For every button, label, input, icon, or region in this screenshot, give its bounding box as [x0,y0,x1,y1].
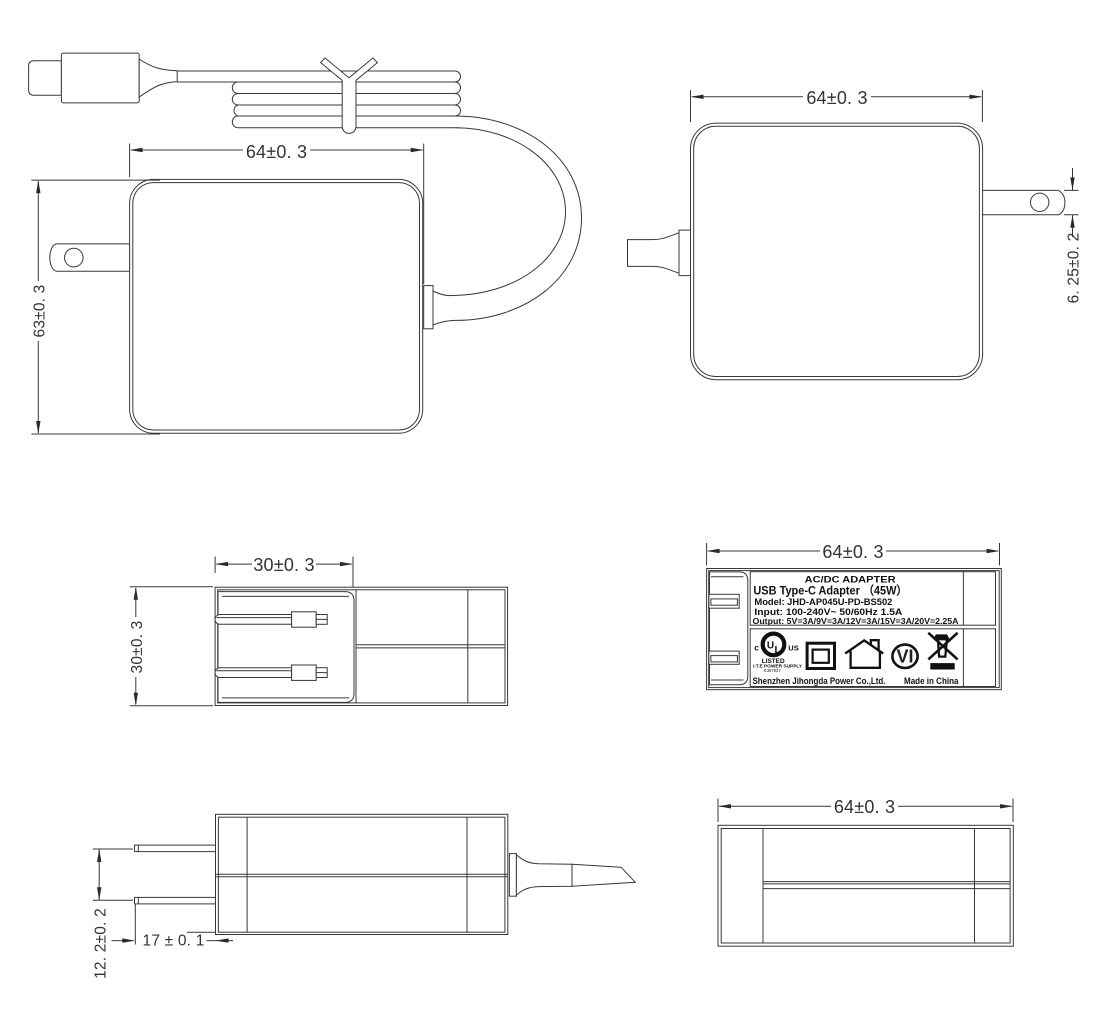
svg-text:USB Type-C Adapter （45W）: USB Type-C Adapter （45W） [753,584,907,598]
svg-text:64±0. 3: 64±0. 3 [806,88,867,108]
svg-text:Model: JHD-AP045U-PD-BS502: Model: JHD-AP045U-PD-BS502 [754,597,892,607]
svg-text:64±0. 3: 64±0. 3 [246,142,307,162]
svg-text:U: U [767,641,774,652]
svg-text:c: c [754,644,759,653]
svg-text:30±0. 3: 30±0. 3 [129,620,146,673]
svg-text:Made in China: Made in China [904,676,959,686]
svg-text:L: L [774,645,780,656]
svg-text:E367827: E367827 [764,668,781,673]
svg-text:Shenzhen Jihongda Power Co.,Lt: Shenzhen Jihongda Power Co.,Ltd. [753,676,886,686]
svg-text:63±0. 3: 63±0. 3 [32,284,49,337]
svg-text:12. 2±0. 2: 12. 2±0. 2 [93,908,110,979]
svg-text:6. 25±0. 2: 6. 25±0. 2 [1066,233,1083,304]
svg-text:US: US [788,643,798,652]
svg-text:17 ± 0. 1: 17 ± 0. 1 [143,932,205,949]
svg-text:VI: VI [896,647,913,667]
svg-text:64±0. 3: 64±0. 3 [834,797,895,817]
svg-text:64±0. 3: 64±0. 3 [822,542,883,562]
svg-text:30±0. 3: 30±0. 3 [253,555,314,575]
svg-text:Output: 5V=3A/9V=3A/12V=3A/15V: Output: 5V=3A/9V=3A/12V=3A/15V=3A/20V=2.… [753,616,959,626]
